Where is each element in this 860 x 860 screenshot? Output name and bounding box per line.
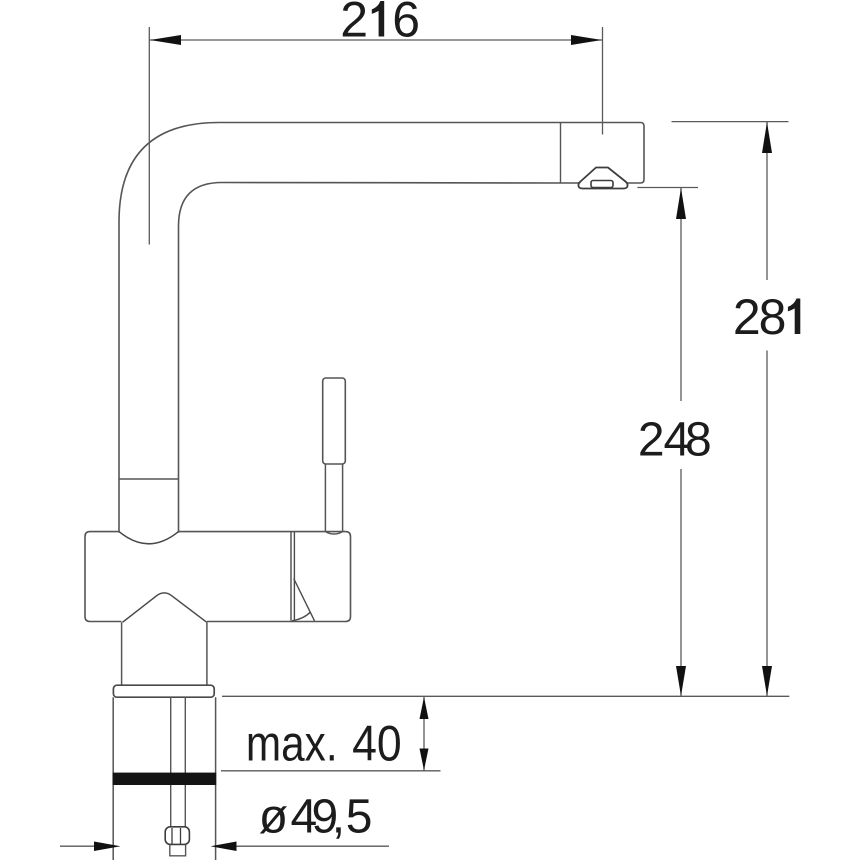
svg-text:5: 5	[346, 790, 373, 843]
svg-text:40: 40	[352, 716, 402, 772]
svg-text:ø: ø	[259, 790, 288, 843]
svg-text:,: ,	[332, 790, 345, 843]
svg-text:2: 2	[638, 413, 665, 466]
svg-text:max.: max.	[246, 716, 338, 772]
svg-text:8: 8	[759, 289, 787, 345]
svg-text:6: 6	[392, 0, 420, 48]
svg-text:2: 2	[733, 289, 761, 345]
svg-text:8: 8	[685, 413, 712, 466]
svg-text:2: 2	[340, 0, 368, 48]
